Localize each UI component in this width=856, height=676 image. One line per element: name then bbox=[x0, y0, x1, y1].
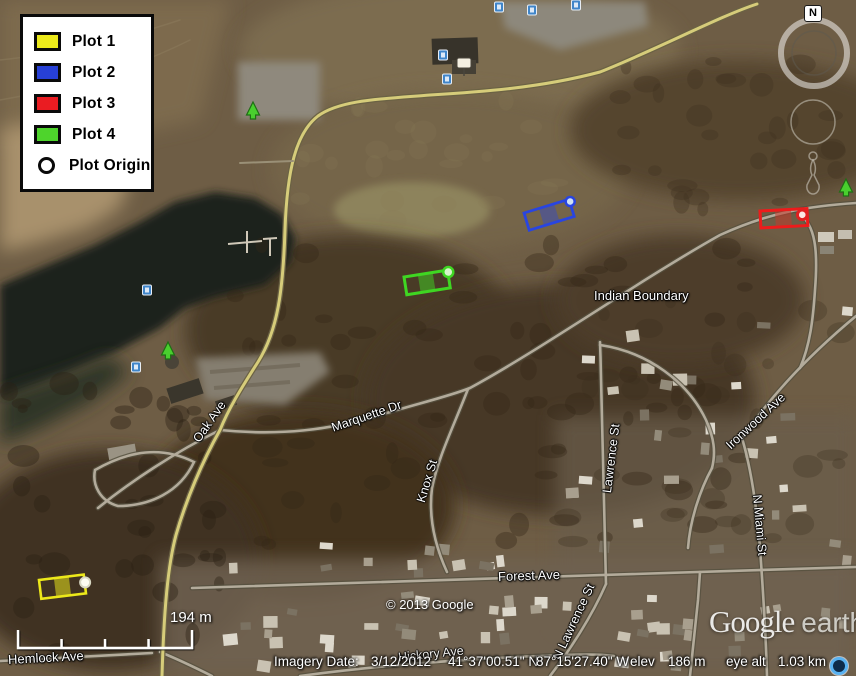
facility-icon bbox=[495, 2, 504, 12]
facility-icon bbox=[572, 0, 581, 10]
plot2-label: Plot 2 bbox=[72, 64, 115, 82]
plot2-swatch bbox=[34, 63, 61, 82]
facility-icon bbox=[143, 285, 152, 295]
plot3-label: Plot 3 bbox=[72, 95, 115, 113]
plot4-label: Plot 4 bbox=[72, 126, 115, 144]
latitude-value: 41°37'00.51" N bbox=[448, 654, 538, 669]
legend-item-plot4: Plot 4 bbox=[34, 119, 151, 150]
legend-item-plot3: Plot 3 bbox=[34, 88, 151, 119]
facility-icon bbox=[439, 50, 448, 60]
label-indian-boundary: Indian Boundary bbox=[594, 288, 689, 303]
eye-altitude-value: 1.03 km bbox=[778, 654, 826, 669]
status-bar: Imagery Date: 3/12/2012 41°37'00.51" N 8… bbox=[0, 654, 856, 676]
plot-3-origin bbox=[797, 210, 807, 220]
facility-icon bbox=[443, 74, 452, 84]
compass-north-label[interactable]: N bbox=[804, 5, 822, 22]
imagery-date-value: 3/12/2012 bbox=[371, 654, 431, 669]
plot-2-origin bbox=[565, 196, 576, 207]
logo-earth: earth bbox=[801, 607, 856, 638]
label-forest-ave: Forest Ave bbox=[498, 567, 560, 584]
longitude-value: 87°15'27.40" W bbox=[536, 654, 629, 669]
legend-item-plot1: Plot 1 bbox=[34, 26, 151, 57]
elev-label: elev bbox=[630, 654, 655, 669]
plot-legend: Plot 1 Plot 2 Plot 3 Plot 4 Plot Origin bbox=[20, 14, 154, 192]
plot-origin-label: Plot Origin bbox=[69, 157, 150, 175]
copyright-text: © 2013 Google bbox=[386, 597, 474, 612]
plot4-swatch bbox=[34, 125, 61, 144]
elevation-value: 186 m bbox=[668, 654, 706, 669]
eye-alt-label: eye alt bbox=[726, 654, 766, 669]
plot1-swatch bbox=[34, 32, 61, 51]
plot1-label: Plot 1 bbox=[72, 33, 115, 51]
imagery-date-label: Imagery Date: bbox=[274, 654, 359, 669]
facility-icon bbox=[528, 5, 537, 15]
scale-label: 194 m bbox=[170, 609, 212, 626]
plot-1-origin bbox=[80, 577, 91, 588]
plot-4-origin bbox=[443, 266, 454, 277]
google-earth-logo: Googleearth bbox=[709, 604, 856, 640]
logo-google: Google bbox=[709, 604, 794, 639]
facility-icon bbox=[132, 362, 141, 372]
plot-origin-swatch bbox=[38, 157, 55, 174]
legend-item-plot2: Plot 2 bbox=[34, 57, 151, 88]
streaming-globe-icon[interactable] bbox=[830, 657, 848, 675]
google-earth-window: Indian Boundary Ironwood Ave Lawrence St… bbox=[0, 0, 856, 676]
legend-item-origin: Plot Origin bbox=[34, 150, 151, 181]
plot3-swatch bbox=[34, 94, 61, 113]
